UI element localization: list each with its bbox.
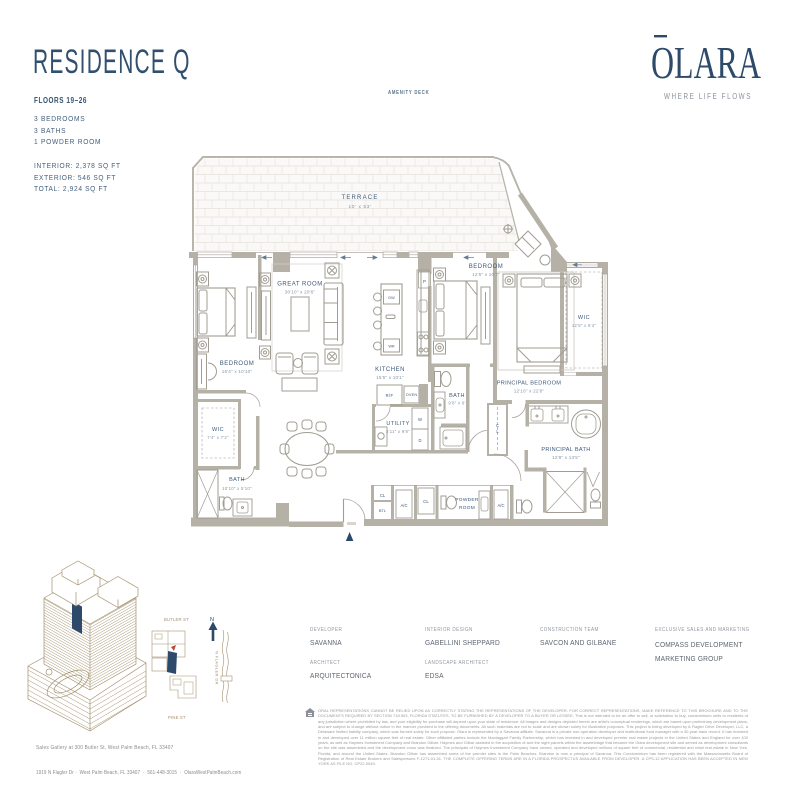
svg-text:15'5" x 10'1": 15'5" x 10'1": [376, 375, 404, 380]
svg-text:CL: CL: [423, 499, 429, 504]
svg-text:9'8" x 6': 9'8" x 6': [448, 401, 465, 406]
svg-text:12'8" x 13'5": 12'8" x 13'5": [552, 455, 580, 460]
svg-text:BEDROOM: BEDROOM: [469, 264, 504, 270]
svg-text:UTILITY: UTILITY: [386, 421, 409, 427]
svg-text:WR: WR: [388, 345, 395, 349]
svg-text:W: W: [418, 417, 422, 422]
svg-text:BATH: BATH: [449, 393, 465, 399]
svg-text:PINE ST: PINE ST: [168, 715, 186, 720]
svg-text:A/C: A/C: [498, 503, 505, 508]
svg-text:BATH: BATH: [229, 477, 245, 483]
svg-text:10' x 53': 10' x 53': [349, 204, 372, 210]
svg-text:12'10" x 22'8": 12'10" x 22'8": [514, 389, 545, 394]
svg-text:N: N: [210, 617, 214, 623]
svg-text:N FLAGLER DR: N FLAGLER DR: [215, 651, 220, 685]
svg-text:KITCHEN: KITCHEN: [375, 367, 405, 373]
svg-text:C: C: [496, 423, 499, 428]
svg-text:30'10" x 20'6": 30'10" x 20'6": [285, 290, 316, 295]
svg-text:7'4" x 7'2": 7'4" x 7'2": [207, 435, 229, 440]
svg-text:PRINCIPAL BEDROOM: PRINCIPAL BEDROOM: [497, 381, 562, 387]
svg-text:BTL: BTL: [379, 508, 387, 513]
svg-text:R/F: R/F: [386, 393, 394, 398]
svg-text:16'4" x 10'10": 16'4" x 10'10": [222, 369, 253, 374]
svg-text:ROOM: ROOM: [459, 505, 475, 511]
svg-text:P: P: [423, 279, 426, 284]
svg-text:BUTLER ST: BUTLER ST: [164, 617, 189, 622]
svg-text:A/C: A/C: [401, 503, 408, 508]
svg-text:CL: CL: [380, 493, 386, 498]
svg-text:PRINCIPAL BATH: PRINCIPAL BATH: [541, 447, 590, 453]
svg-text:12'5" x 10'7": 12'5" x 10'7": [472, 272, 500, 277]
svg-text:12'8" x 6'4": 12'8" x 6'4": [572, 323, 596, 328]
svg-text:OVEN: OVEN: [406, 393, 418, 397]
svg-text:BEDROOM: BEDROOM: [220, 361, 255, 367]
svg-text:POWDER: POWDER: [455, 497, 479, 503]
svg-text:WIC: WIC: [578, 315, 590, 321]
svg-text:D: D: [418, 438, 421, 443]
svg-text:TERRACE: TERRACE: [341, 195, 378, 201]
svg-text:WIC: WIC: [212, 427, 224, 433]
svg-text:GREAT ROOM: GREAT ROOM: [277, 282, 322, 288]
svg-text:10'10" x 5'10": 10'10" x 5'10": [222, 486, 252, 491]
svg-text:DW: DW: [388, 296, 395, 300]
svg-text:4'11" x 9'8": 4'11" x 9'8": [386, 429, 410, 434]
